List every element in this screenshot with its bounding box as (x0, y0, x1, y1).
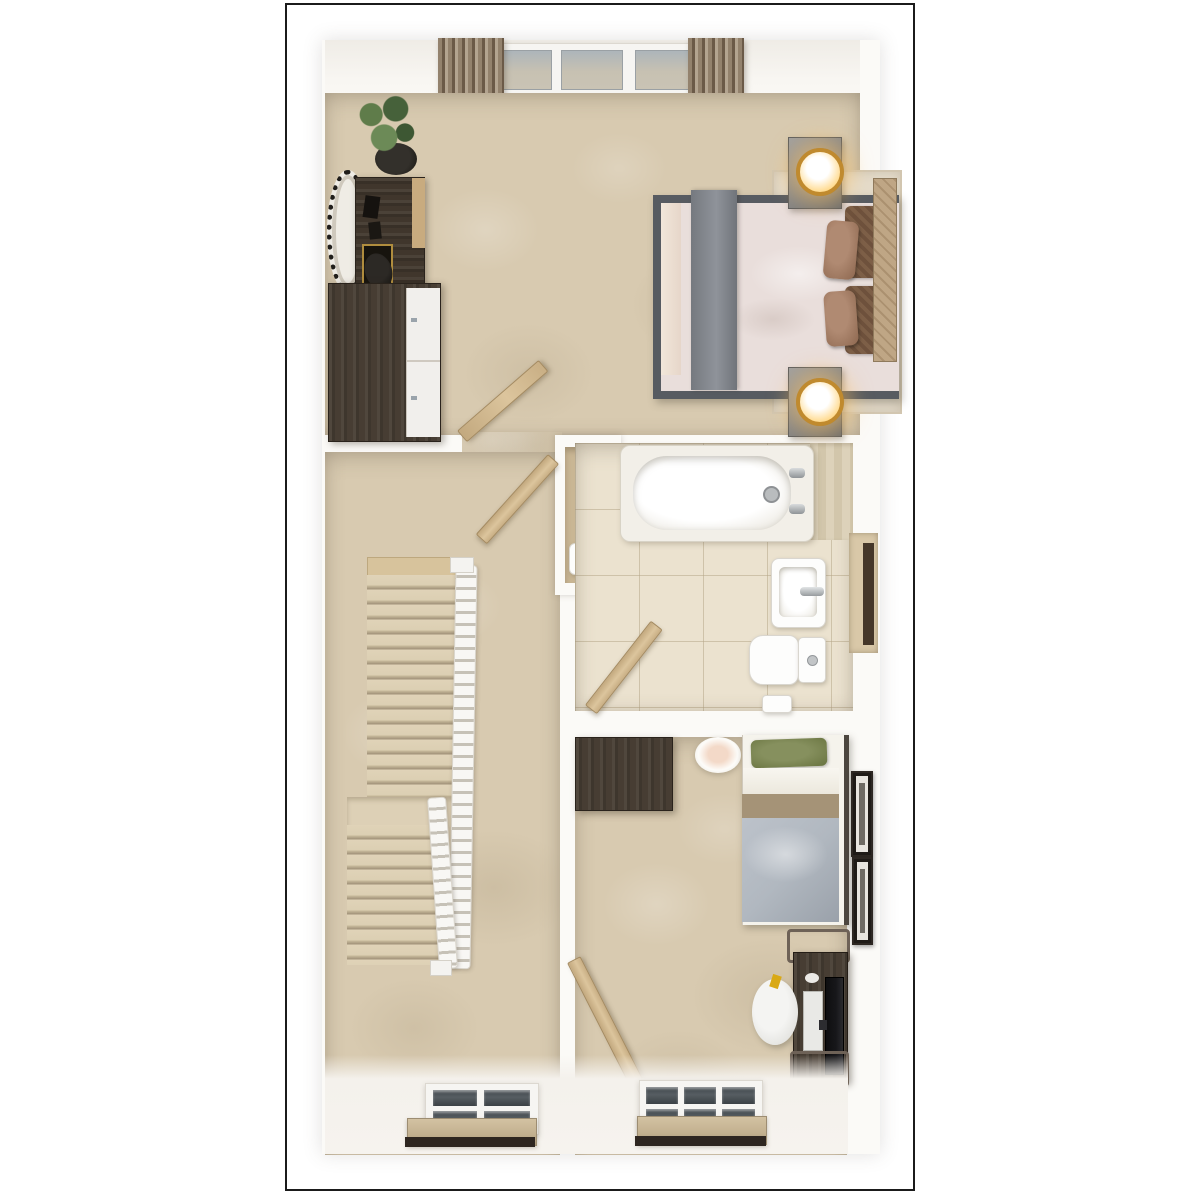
pillow-brown-top (823, 220, 860, 281)
table-lamp-bottom (796, 378, 844, 426)
building-walls (322, 40, 880, 1154)
frame-art-core (860, 869, 865, 933)
bedroom2-wardrobe (575, 737, 673, 811)
bath-mat (762, 695, 792, 713)
window-pane (722, 1087, 755, 1104)
bottom-wall (325, 1055, 848, 1154)
headboard (873, 178, 897, 362)
basin (771, 558, 826, 628)
towel-niche (849, 533, 878, 653)
bath-tap (789, 504, 805, 514)
plant-foliage (351, 93, 423, 165)
newel-post (450, 557, 474, 573)
picture-frame-upper (851, 771, 873, 857)
window-pane (433, 1090, 477, 1106)
bath-tap (789, 468, 805, 478)
potted-plant (347, 93, 427, 179)
toilet-cistern (798, 637, 826, 683)
table-lamp-top (796, 148, 844, 196)
wardrobe-hinge (411, 318, 417, 322)
desk-side-panel (412, 178, 425, 248)
beanbag (752, 979, 798, 1045)
green-pillow (751, 738, 828, 769)
pendant-lamp (695, 737, 741, 773)
desk-photo-frame (363, 195, 381, 219)
bedroom2-window-sill (635, 1136, 766, 1146)
picture-frame-lower (852, 857, 873, 945)
bathtub (620, 445, 814, 542)
master-doorway-threshold (462, 432, 562, 454)
flush-button (807, 655, 818, 666)
floorplan-border-frame (285, 3, 915, 1191)
mouse (805, 973, 819, 983)
single-bed (742, 735, 849, 925)
tan-blanket-band (742, 794, 839, 818)
staircase-upper-flight (367, 575, 455, 801)
wardrobe-hinge (411, 396, 417, 400)
window-pane (684, 1087, 716, 1104)
desk-photo-frame (368, 221, 382, 239)
monitor-stand (819, 1020, 827, 1030)
floorplan-canvas (0, 0, 1200, 1200)
bath-drain (763, 486, 780, 503)
gray-duvet (742, 818, 839, 922)
window-pane (484, 1090, 530, 1106)
tub-deck-tiles (810, 443, 853, 540)
wardrobe-door-seam (407, 360, 440, 362)
basin-tap (800, 587, 824, 596)
bed-runner (691, 190, 737, 390)
pillow-brown-bottom (823, 290, 859, 347)
window-pane (561, 50, 623, 90)
window-pane (635, 50, 693, 90)
newel-post (430, 960, 452, 976)
towel-rail (863, 543, 874, 645)
toilet-bowl (749, 635, 799, 685)
staircase-lower-flight (347, 825, 439, 965)
wardrobe-white-doors (406, 288, 440, 437)
window-pane (646, 1087, 678, 1104)
duvet-fold (661, 203, 681, 375)
sheet-band (743, 768, 839, 794)
landing-window-sill (405, 1137, 535, 1147)
frame-art-core (859, 783, 865, 845)
master-window (477, 43, 707, 95)
master-wardrobe (328, 283, 441, 442)
